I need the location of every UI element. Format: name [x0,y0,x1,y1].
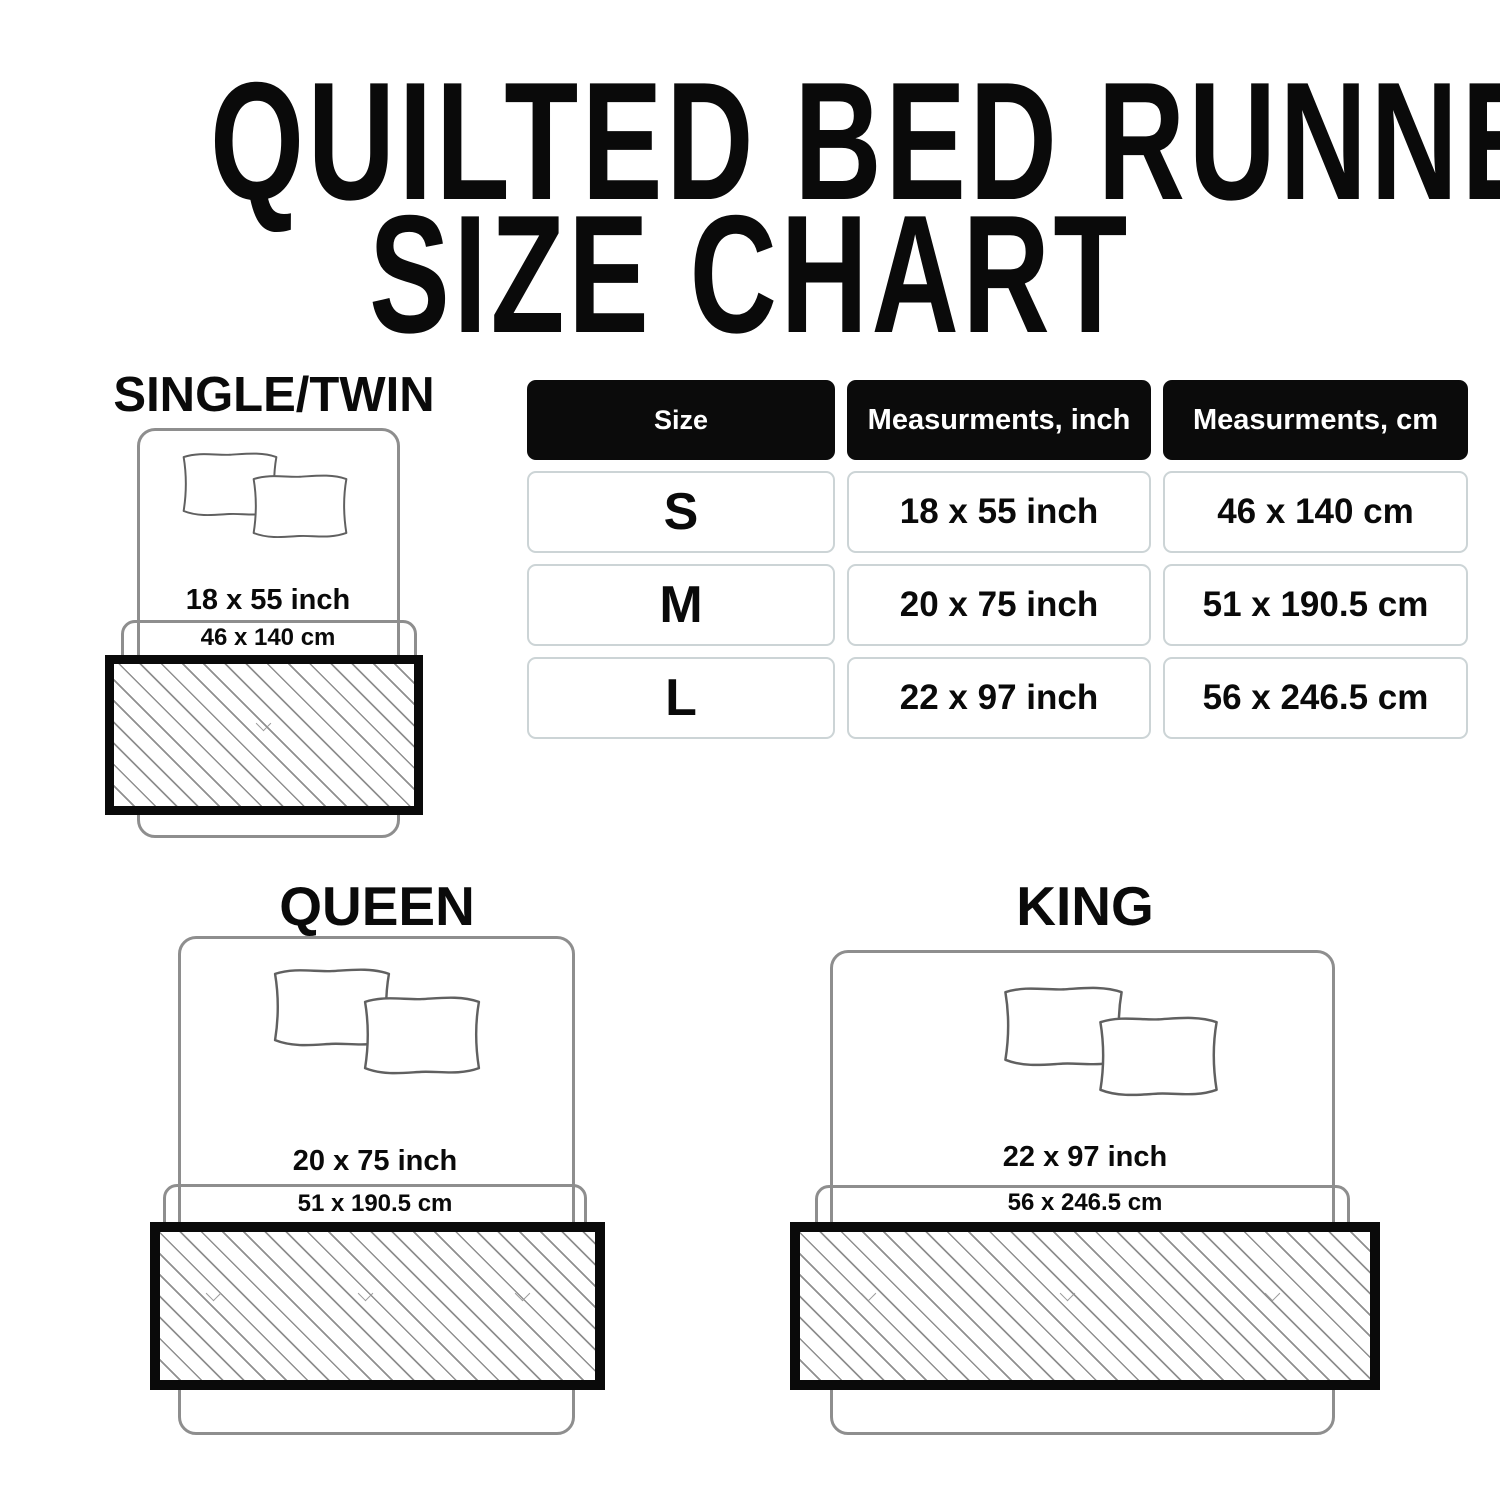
bed-size-label-king: KING [885,878,1285,934]
quilt-stitch-mark [256,716,272,732]
table-cell-size-s: S [527,471,835,553]
runner-size-inch-label-queen: 20 x 75 inch [225,1146,525,1176]
pillow-front-icon [243,466,357,546]
table-cell-cm-l: 56 x 246.5 cm [1163,657,1468,739]
quilt-stitch-mark [860,1286,876,1302]
table-cell-inch-l: 22 x 97 inch [847,657,1151,739]
size-table-header-size: Size [527,380,835,460]
table-cell-cm-m: 51 x 190.5 cm [1163,564,1468,646]
table-cell-inch-s: 18 x 55 inch [847,471,1151,553]
bed-size-label-queen: QUEEN [177,878,577,934]
table-cell-size-m: M [527,564,835,646]
size-table: Size Measurments, inch Measurments, cm S… [527,380,1468,739]
pillow-front-icon [1087,1006,1230,1106]
runner-size-cm-label-single: 46 x 140 cm [118,625,418,650]
runner-size-inch-label-single: 18 x 55 inch [118,585,418,615]
table-cell-size-l: L [527,657,835,739]
bed-size-label-single-twin: SINGLE/TWIN [74,370,474,420]
quilt-stitch-mark [358,1286,374,1302]
table-cell-inch-m: 20 x 75 inch [847,564,1151,646]
pillow-front-icon [352,986,492,1084]
quilt-stitch-mark [514,1286,530,1302]
quilt-stitch-mark [206,1286,222,1302]
runner-size-inch-label-king: 22 x 97 inch [935,1142,1235,1172]
page-title-line-2: SIZE CHART [210,190,1290,358]
size-table-header-inch: Measurments, inch [847,380,1151,460]
table-cell-cm-s: 46 x 140 cm [1163,471,1468,553]
size-table-header-cm: Measurments, cm [1163,380,1468,460]
runner-size-cm-label-queen: 51 x 190.5 cm [225,1191,525,1216]
bed-runner-swatch-single [105,655,423,815]
quilt-stitch-mark [1060,1286,1076,1302]
runner-size-cm-label-king: 56 x 246.5 cm [935,1190,1235,1215]
quilt-stitch-mark [1265,1286,1281,1302]
bed-runner-swatch-queen [150,1222,605,1390]
quilted-bed-runner-size-chart: QUILTED BED RUNNER SIZE CHART Size Measu… [0,0,1500,1500]
bed-runner-swatch-king [790,1222,1380,1390]
